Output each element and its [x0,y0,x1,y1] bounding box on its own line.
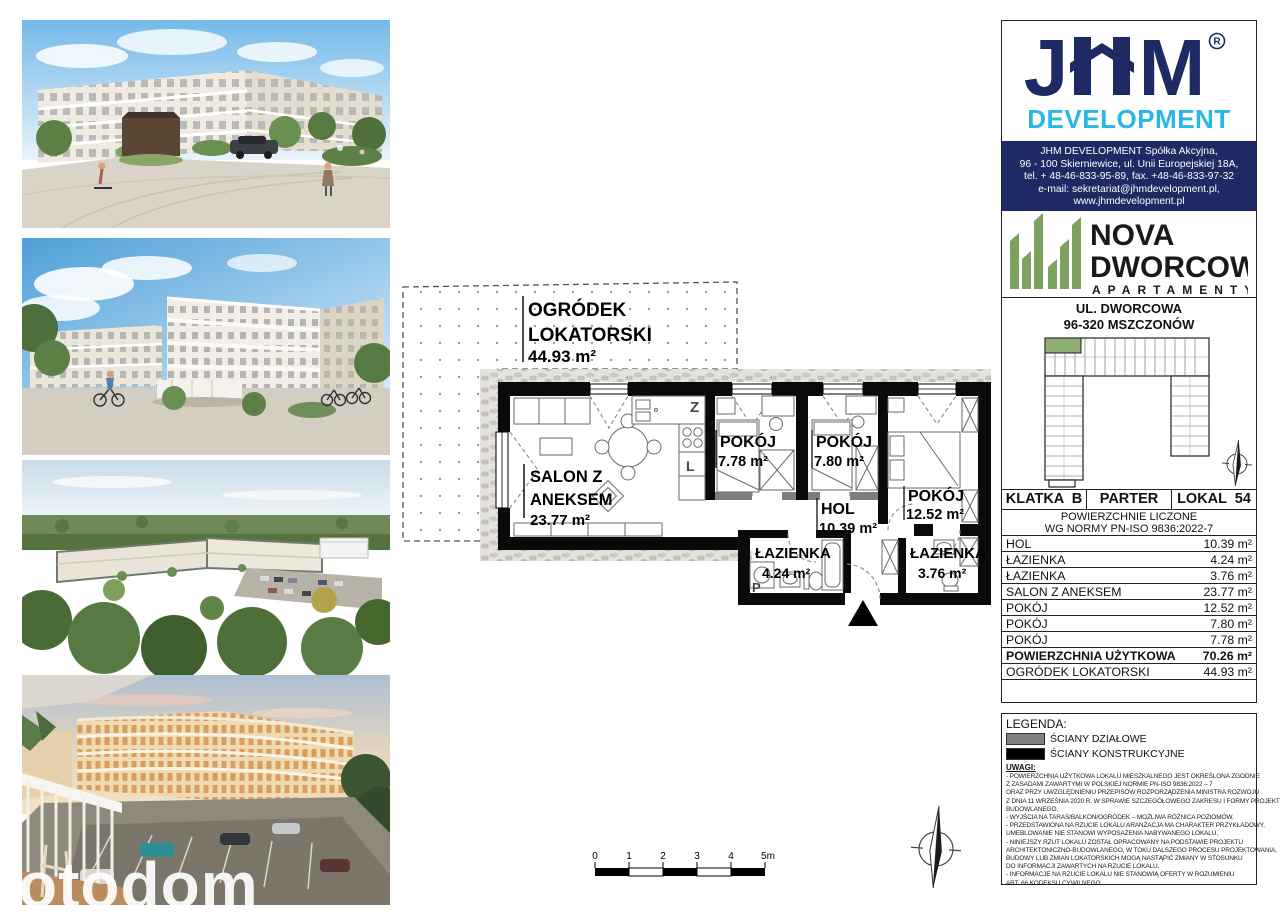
fridge-mark: L [686,458,695,474]
photo3-sky [22,460,390,520]
room-area: 10.39 m² [1203,537,1252,551]
room-area: 70.26 m² [1203,649,1252,663]
contact-block: JHM DEVELOPMENT Spółka Akcyjna, 96 - 100… [1002,141,1256,211]
room3-label: POKÓJ [908,486,964,505]
jhm-development-text: DEVELOPMENT [1027,104,1230,134]
photo-aerial-render [22,460,390,677]
project-name-line2: DWORCOWA [1090,251,1248,284]
room-area: 7.78 m² [1210,633,1252,647]
contact-line: tel. + 48-46-833-95-89, fax. +48-46-833-… [1002,171,1256,184]
registered-trademark-icon: R [1210,34,1225,49]
table-row: SALON Z ANEKSEM 23.77 m² [1002,584,1256,600]
photo1-shed [119,112,183,166]
garden-label: OGRÓDEK [528,299,626,321]
room-area: 12.52 m² [1203,601,1252,615]
room-name: HOL [1006,537,1031,551]
building-overview-plan [1002,333,1256,489]
structural-wall-swatch [1006,748,1045,760]
room-area: 23.77 m² [1203,585,1252,599]
unit-number-cell: LOKAL 54 [1171,490,1256,509]
watermark: otodom [18,848,259,922]
svg-text:LOKATORSKI: LOKATORSKI [528,325,652,346]
hol-label: HOL [821,501,855,518]
salon-area: 23.77 m² [530,512,590,529]
room-name: POWIERZCHNIA UŻYTKOWA [1006,649,1176,663]
table-row: HOL 10.39 m² [1002,536,1256,552]
table-row: POKÓJ 12.52 m² [1002,600,1256,616]
highlighted-unit [1045,338,1081,353]
room3-area: 12.52 m² [906,507,964,523]
bath1-label: ŁAZIENKA [755,545,831,562]
floorplan: OGRÓDEK LOKATORSKI 44.93 m² SALON Z ANEK… [395,270,1000,905]
floor-cell: PARTER [1086,490,1171,509]
unit-identification-row: KLATKA B PARTER LOKAL 54 [1002,489,1256,510]
room-name: ŁAZIENKA [1006,553,1065,567]
room-area: 7.80 m² [1210,617,1252,631]
table-row: OGRÓDEK LOKATORSKI 44.93 m² [1002,664,1256,680]
project-subtitle: APARTAMENTY [1092,283,1248,297]
room-name: POKÓJ [1006,601,1048,615]
room-name: OGRÓDEK LOKATORSKI [1006,665,1150,679]
jhm-letter-m: M [1139,25,1206,112]
garden-area: 44.93 m² [528,347,596,366]
contact-line: e-mail: sekretariat@jhmdevelopment.pl, [1002,184,1256,197]
jhm-letter-j: J [1024,25,1068,112]
legend-item: ŚCIANY DZIAŁOWE [1006,733,1252,745]
partition-wall-swatch [1006,733,1045,745]
nova-bars-icon [1010,213,1081,289]
mini-compass-icon [1221,439,1254,487]
svg-text:4: 4 [728,851,734,862]
measurement-norm-note: POWIERZCHNIE LICZONE WG NORMY PN-ISO 983… [1002,510,1256,536]
bath1-area: 4.24 m² [762,565,811,581]
project-name-line1: NOVA [1090,219,1174,252]
photo3-parking [234,568,382,610]
table-row-total: POWIERZCHNIA UŻYTKOWA 70.26 m² [1002,648,1256,664]
address-street: UL. DWORCOWA [1002,301,1256,317]
washer-mark: P [752,580,761,595]
table-row: ŁAZIENKA 3.76 m² [1002,568,1256,584]
room-name: POKÓJ [1006,617,1048,631]
bath2-area: 3.76 m² [918,565,967,581]
svg-text:5m: 5m [761,851,775,862]
address-block: UL. DWORCOWA 96-320 MSZCZONÓW [1002,297,1256,333]
svg-text:1: 1 [626,851,632,862]
notes-title: UWAGI: [1006,763,1252,772]
photo-courtyard-render [22,20,390,228]
info-sidebar: J M R DEVELOPMENT JHM DEVELOPMENT Spółka… [1001,20,1257,885]
address-city: 96-320 MSZCZONÓW [1002,317,1256,333]
entrance-arrow-icon [848,600,878,626]
legend-item: ŚCIANY KONSTRUKCYJNE [1006,748,1252,760]
room2-label: POKÓJ [816,432,872,451]
empty-cell [1002,680,1256,702]
contact-line: JHM DEVELOPMENT Spółka Akcyjna, [1002,146,1256,159]
legend-and-notes: LEGENDA: ŚCIANY DZIAŁOWE ŚCIANY KONSTRUK… [1001,713,1257,885]
nova-dworcowa-logo: NOVA DWORCOWA APARTAMENTY [1002,211,1256,297]
photo3-foreground-trees [22,579,390,677]
svg-text:ANEKSEM: ANEKSEM [530,491,613,509]
bath2-label: ŁAZIENKA [910,545,986,562]
room-name: SALON Z ANEKSEM [1006,585,1122,599]
contact-line: www.jhmdevelopment.pl [1002,196,1256,209]
table-row: ŁAZIENKA 4.24 m² [1002,552,1256,568]
photo1-ground [22,157,390,228]
table-row: POKÓJ 7.78 m² [1002,632,1256,648]
staircase-cell: KLATKA B [1002,490,1086,509]
jhm-letter-h-house-icon [1070,37,1134,95]
jhm-logo: J M R DEVELOPMENT [1002,21,1256,141]
notes-text: - POWIERZCHNIA UŻYTKOWA LOKALU MIESZKALN… [1006,773,1252,888]
room-area: 3.76 m² [1210,569,1252,583]
room2-area: 7.80 m² [814,454,864,470]
svg-text:0: 0 [592,851,598,862]
legend-title: LEGENDA: [1006,717,1252,731]
table-row: POKÓJ 7.80 m² [1002,616,1256,632]
room1-area: 7.78 m² [718,454,768,470]
room-name: POKÓJ [1006,633,1048,647]
svg-text:R: R [1213,37,1221,48]
room-area: 44.93 m² [1203,665,1252,679]
compass-icon [908,804,964,889]
contact-line: 96 - 100 Skierniewice, ul. Unii Europejs… [1002,159,1256,172]
svg-text:2: 2 [660,851,666,862]
room1-label: POKÓJ [720,432,776,451]
svg-text:3: 3 [694,851,700,862]
room-area: 4.24 m² [1210,553,1252,567]
hol-area: 10.39 m² [819,521,877,537]
room-name: ŁAZIENKA [1006,569,1065,583]
areas-table: HOL 10.39 m² ŁAZIENKA 4.24 m² ŁAZIENKA 3… [1002,536,1256,680]
photo-building-corner-render [22,238,390,455]
scale-bar: 0 1 2 3 4 5m [592,851,775,876]
sink-mark: Z [690,399,699,416]
salon-label: SALON Z [530,468,602,486]
